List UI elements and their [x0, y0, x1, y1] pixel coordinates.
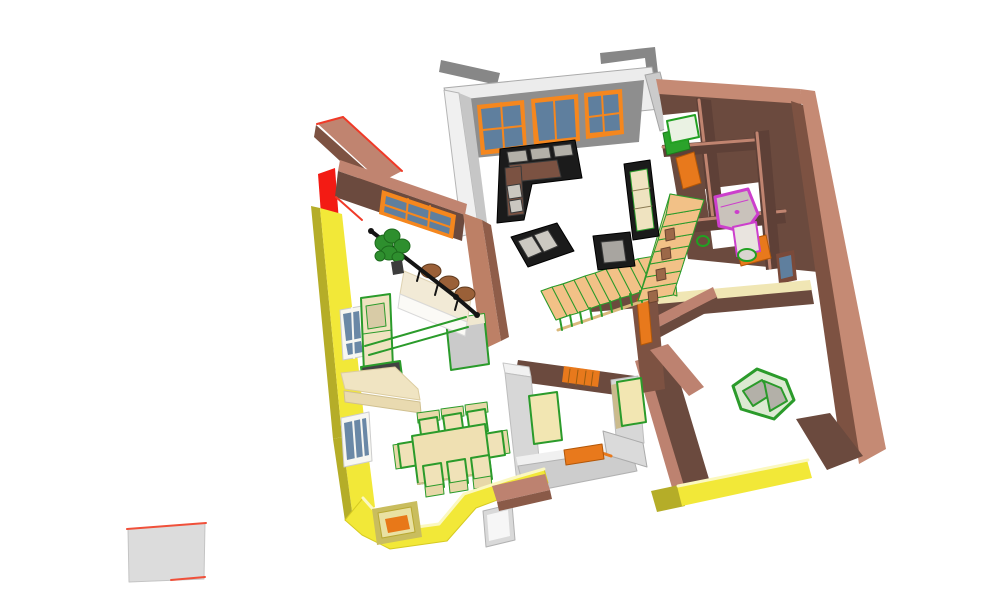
scene-canvas[interactable] — [0, 0, 1000, 608]
railing-knob — [474, 312, 480, 318]
entry-bench-east[interactable] — [617, 378, 646, 426]
plant-foliage — [375, 251, 385, 261]
bay-roof-wing-left — [439, 60, 500, 85]
kitchen-oven-door — [366, 303, 386, 329]
sectional-accent-cushion — [509, 199, 523, 213]
toilet-seat[interactable] — [738, 249, 756, 261]
stair-newel — [648, 290, 658, 303]
sectional-back-cushion — [507, 150, 528, 163]
sectional-accent-cushion — [507, 184, 522, 199]
sectional-back-cushion — [553, 144, 573, 157]
closet-cabinet-top[interactable] — [667, 115, 699, 143]
sectional-back-cushion — [530, 147, 551, 160]
floorplan-3d-viewport[interactable] — [0, 0, 1000, 608]
stair-newel — [661, 247, 671, 260]
entry-bench-west[interactable] — [529, 392, 562, 444]
railing-knob — [453, 294, 459, 300]
stair-newel — [665, 228, 675, 241]
plant-pot — [391, 260, 404, 275]
east-window-glass — [779, 255, 793, 279]
west-window-lower-glass — [344, 418, 369, 460]
bay-opening-2-inner — [487, 510, 510, 541]
plant-foliage — [392, 252, 404, 262]
railing-knob — [368, 228, 374, 234]
stair-newel — [656, 268, 666, 281]
spare-wall-panel — [128, 523, 205, 582]
armchair-cushion — [601, 240, 626, 263]
shower-drain — [735, 210, 740, 214]
